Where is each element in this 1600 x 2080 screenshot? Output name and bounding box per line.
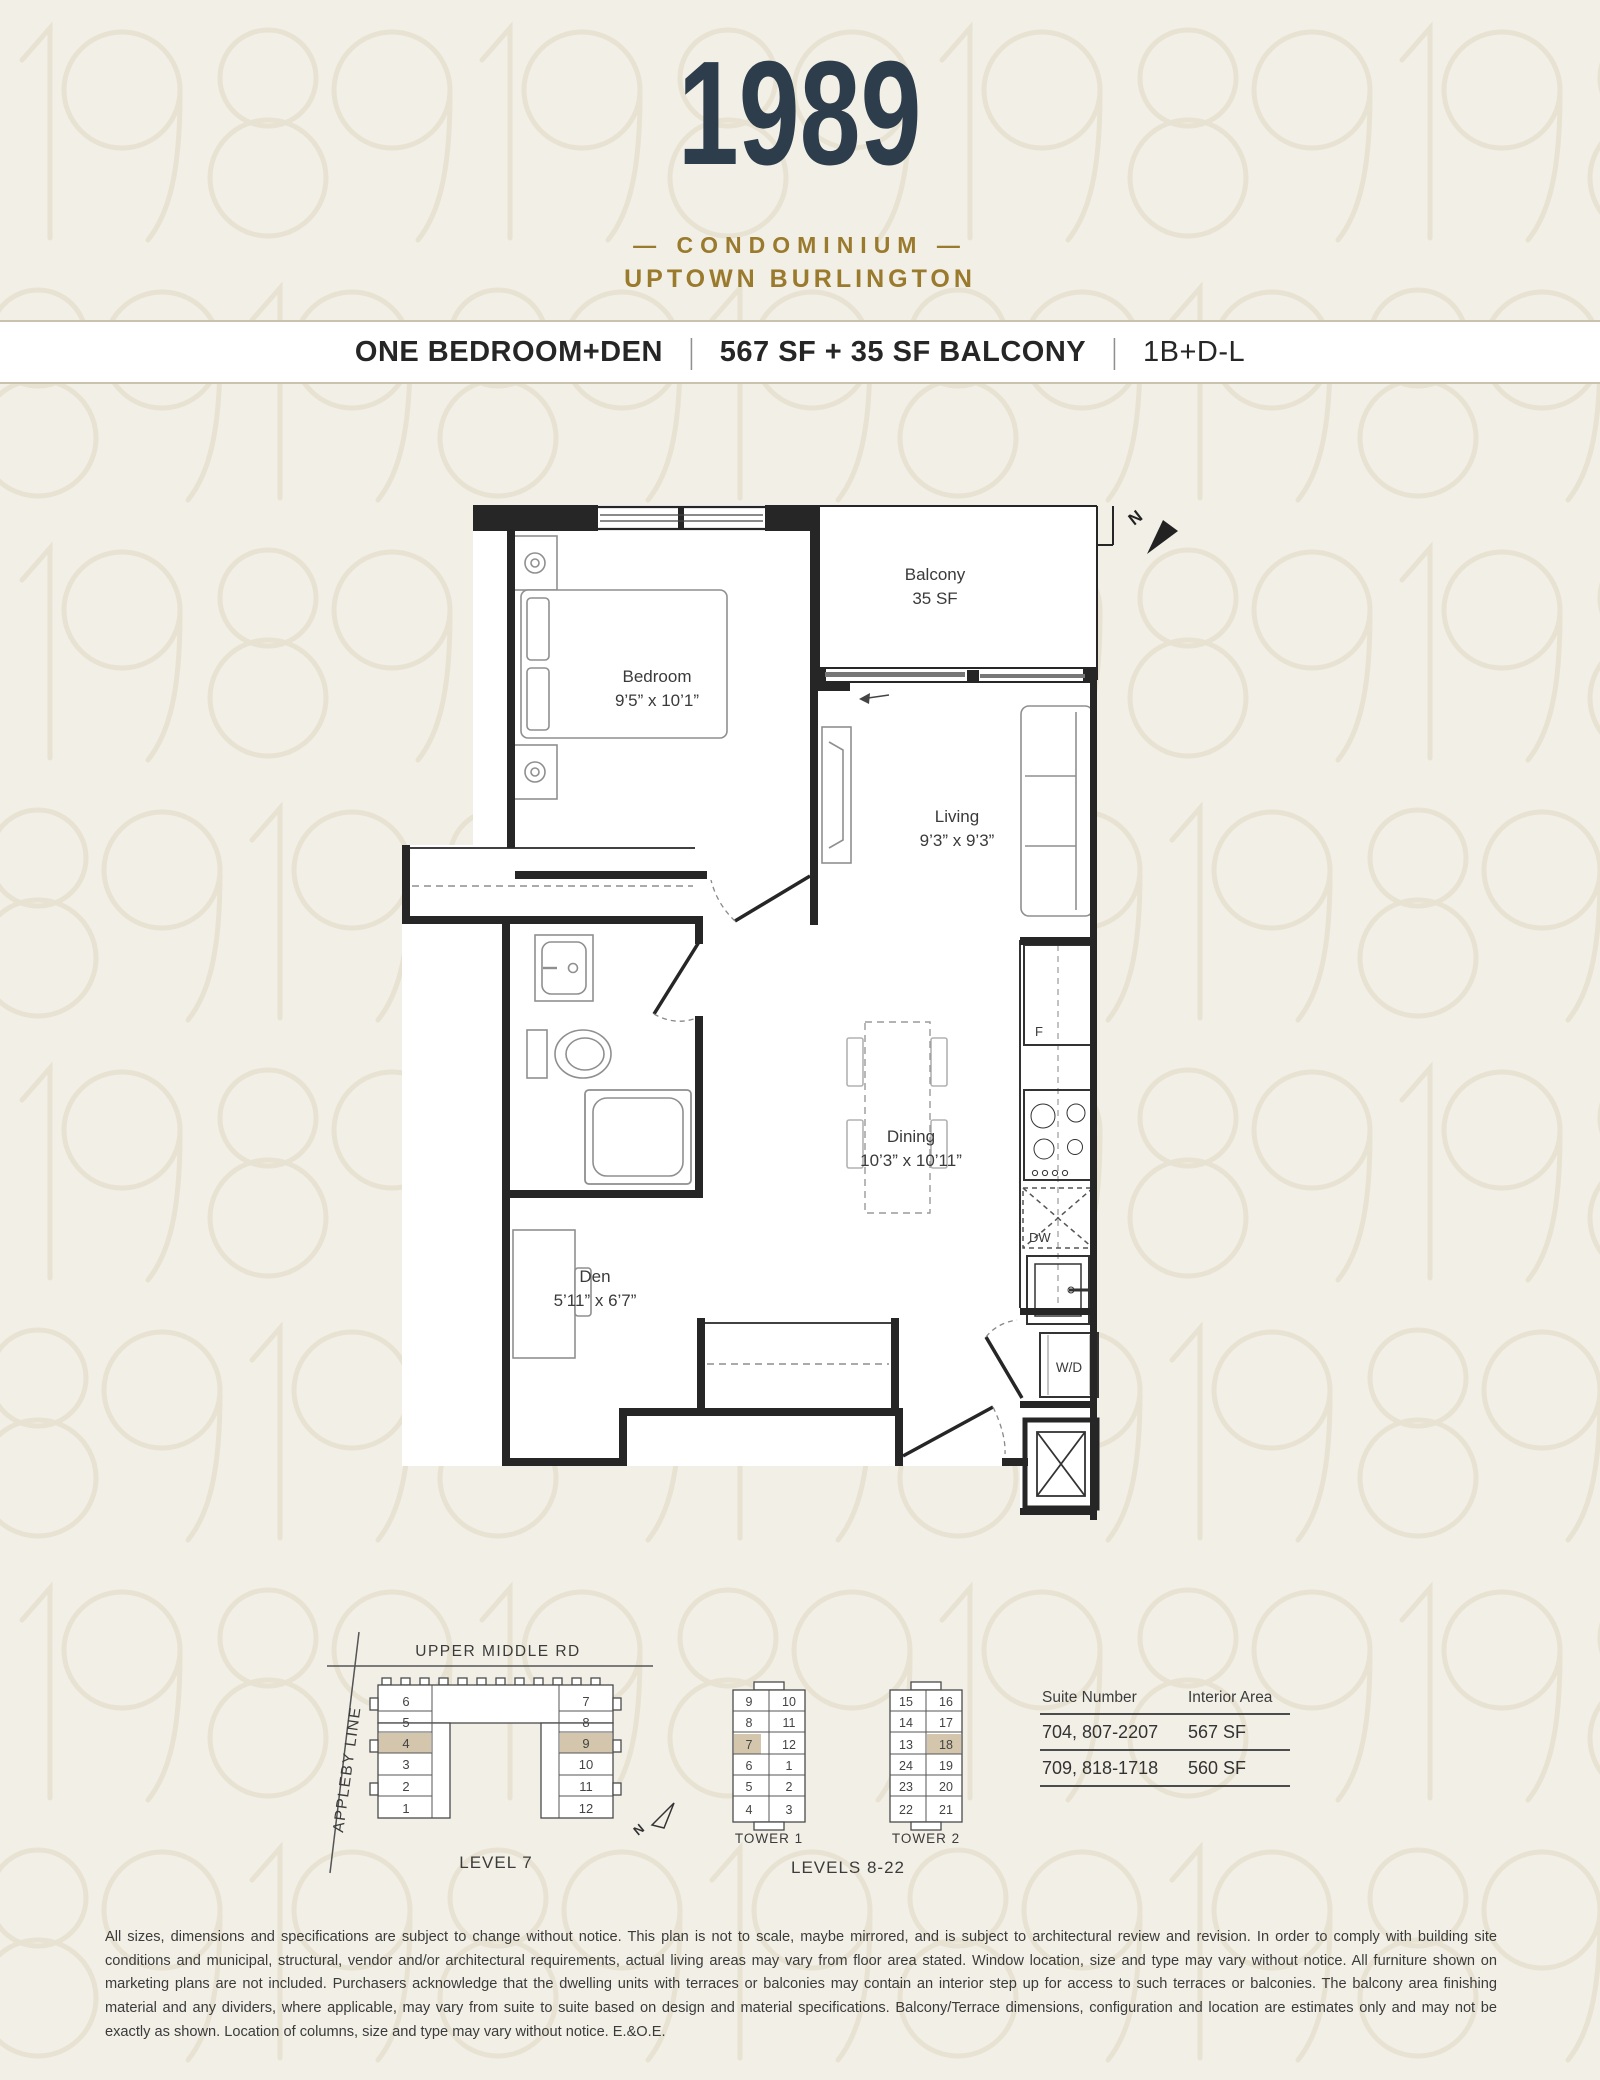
plan-code: 1B+D-L [1143, 336, 1245, 369]
svg-text:13: 13 [899, 1738, 913, 1752]
svg-text:20: 20 [939, 1780, 953, 1794]
svg-text:17: 17 [939, 1716, 953, 1730]
fridge-label: F [1035, 1024, 1043, 1039]
svg-text:8: 8 [582, 1715, 589, 1730]
balcony-label: Balcony [905, 565, 966, 584]
svg-text:10: 10 [579, 1757, 593, 1772]
svg-text:4: 4 [746, 1803, 753, 1817]
svg-text:2: 2 [402, 1779, 409, 1794]
den-dims: 5’11” x 6’7” [554, 1291, 637, 1310]
street-appleby: APPLEBY LINE [330, 1705, 365, 1833]
logo-city-line: UPTOWN BURLINGTON [0, 265, 1600, 294]
svg-text:7: 7 [746, 1738, 753, 1752]
svg-text:6: 6 [402, 1694, 409, 1709]
washer-dryer-label: W/D [1056, 1360, 1082, 1375]
svg-text:10: 10 [782, 1695, 796, 1709]
svg-text:N: N [1125, 507, 1146, 530]
tower2-caption: TOWER 2 [892, 1831, 960, 1846]
svg-text:1: 1 [786, 1759, 793, 1773]
svg-text:1: 1 [402, 1801, 409, 1816]
title-separator: | [689, 333, 694, 372]
key-plan-tower1: 9 8 7 6 5 4 10 11 12 1 2 3 TOWER 1 [733, 1682, 805, 1846]
north-arrow-icon: N [1125, 507, 1178, 554]
svg-text:22: 22 [899, 1803, 913, 1817]
plan-area: 567 SF + 35 SF BALCONY [720, 336, 1086, 369]
table-rule [1040, 1785, 1290, 1787]
svg-text:9: 9 [582, 1736, 589, 1751]
table-row: 709, 818-1718 560 SF [1040, 1751, 1290, 1785]
title-separator: | [1112, 333, 1117, 372]
floor-plan: N Bedroom 9’5” x 10’1” Balcony 35 SF Liv… [345, 490, 1195, 1590]
svg-text:3: 3 [402, 1757, 409, 1772]
plan-name: ONE BEDROOM+DEN [355, 336, 663, 369]
svg-text:23: 23 [899, 1780, 913, 1794]
svg-text:7: 7 [582, 1694, 589, 1709]
keyplan-north-icon: N [630, 1803, 674, 1838]
street-upper-middle: UPPER MIDDLE RD [415, 1643, 580, 1660]
svg-text:18: 18 [939, 1738, 953, 1752]
svg-text:16: 16 [939, 1695, 953, 1709]
svg-text:8: 8 [746, 1716, 753, 1730]
svg-text:3: 3 [786, 1803, 793, 1817]
bedroom-dims: 9’5” x 10’1” [615, 691, 699, 710]
svg-text:2: 2 [786, 1780, 793, 1794]
svg-text:6: 6 [746, 1759, 753, 1773]
tower1-caption: TOWER 1 [735, 1831, 803, 1846]
svg-text:N: N [630, 1821, 647, 1839]
bedroom-label: Bedroom [623, 667, 692, 686]
svg-text:21: 21 [939, 1803, 953, 1817]
suite-table-col-area: Interior Area [1176, 1689, 1288, 1707]
svg-text:14: 14 [899, 1716, 913, 1730]
svg-text:5: 5 [746, 1780, 753, 1794]
suite-table: Suite Number Interior Area 704, 807-2207… [1040, 1682, 1290, 1787]
living-dims: 9’3” x 9’3” [920, 831, 995, 850]
shaft-box [1025, 1420, 1097, 1508]
suite-table-col-suite: Suite Number [1042, 1689, 1176, 1707]
svg-text:5: 5 [402, 1715, 409, 1730]
living-label: Living [935, 807, 979, 826]
key-plan-level7: UPPER MIDDLE RD APPLEBY LINE [327, 1632, 674, 1873]
svg-text:11: 11 [783, 1716, 796, 1730]
svg-text:4: 4 [402, 1736, 409, 1751]
disclaimer-text: All sizes, dimensions and specifications… [105, 1926, 1497, 2044]
table-row: 704, 807-2207 567 SF [1040, 1715, 1290, 1749]
balcony-dims: 35 SF [912, 589, 957, 608]
brochure-page: 1989 — CONDOMINIUM — UPTOWN BURLINGTON O… [0, 0, 1600, 2080]
svg-text:12: 12 [579, 1801, 593, 1816]
svg-text:12: 12 [782, 1738, 796, 1752]
key-plan-tower2: 15 14 13 24 23 22 16 17 18 19 20 21 TOWE… [890, 1682, 962, 1846]
logo-condominium-line: — CONDOMINIUM — [0, 232, 1600, 259]
svg-text:15: 15 [899, 1695, 913, 1709]
svg-text:19: 19 [939, 1759, 953, 1773]
level7-caption: LEVEL 7 [459, 1853, 532, 1872]
svg-text:24: 24 [899, 1759, 913, 1773]
svg-text:9: 9 [746, 1695, 753, 1709]
dishwasher-label: DW [1029, 1230, 1051, 1245]
den-label: Den [579, 1267, 610, 1286]
dining-label: Dining [887, 1127, 935, 1146]
svg-text:11: 11 [579, 1779, 593, 1794]
logo-year: 1989 [0, 40, 1600, 188]
levels-caption: LEVELS 8-22 [791, 1858, 905, 1877]
plan-title-bar: ONE BEDROOM+DEN | 567 SF + 35 SF BALCONY… [0, 320, 1600, 384]
dining-dims: 10’3” x 10’11” [860, 1151, 962, 1170]
